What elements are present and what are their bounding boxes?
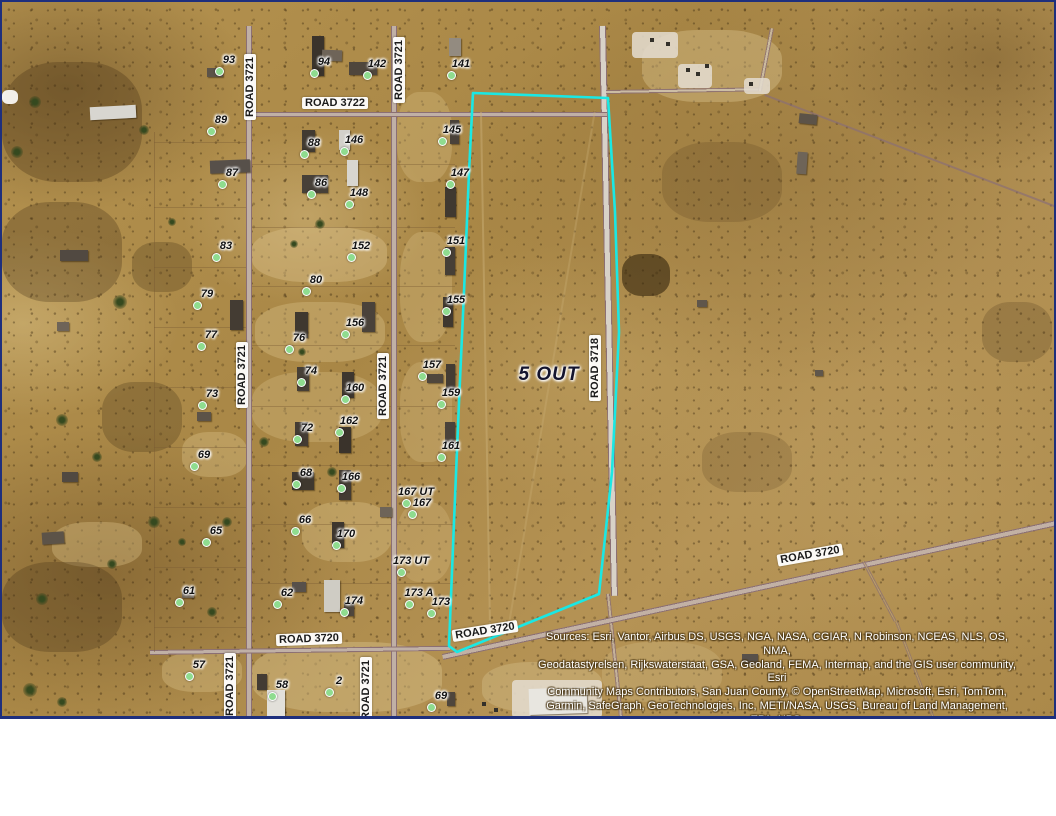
parcel-number-label: 76 xyxy=(293,332,305,344)
address-point xyxy=(302,287,311,296)
parcel-number-label: 57 xyxy=(193,659,205,671)
road-name-label: ROAD 3720 xyxy=(276,632,342,646)
building xyxy=(60,250,88,261)
road-strip xyxy=(252,164,391,165)
tank-structure xyxy=(749,82,753,86)
parcel-tag-label: 5 OUT xyxy=(519,364,580,386)
cleared-pad xyxy=(744,78,770,94)
road-strip xyxy=(252,465,391,466)
building xyxy=(796,152,808,175)
parcel-number-label: 93 xyxy=(223,54,235,66)
address-point xyxy=(442,307,451,316)
address-point xyxy=(185,672,194,681)
cleared-pad xyxy=(632,32,678,58)
address-point xyxy=(337,484,346,493)
road-strip xyxy=(397,164,455,165)
parcel-number-label: 94 xyxy=(318,56,330,68)
parcel-number-label: 160 xyxy=(346,382,364,394)
address-point xyxy=(307,190,316,199)
parcel-number-label: 58 xyxy=(276,679,288,691)
building xyxy=(380,507,392,517)
road-strip xyxy=(154,507,246,508)
address-point xyxy=(207,127,216,136)
parcel-number-label: 159 xyxy=(442,387,460,399)
road-strip xyxy=(154,142,246,143)
tank-structure xyxy=(705,64,709,68)
parcel-number-label: 161 xyxy=(442,440,460,452)
parcel-number-label: 66 xyxy=(299,514,311,526)
address-point xyxy=(438,137,447,146)
address-point xyxy=(293,435,302,444)
building xyxy=(230,300,243,330)
tree xyxy=(298,348,306,356)
address-point xyxy=(408,510,417,519)
attribution-line: Sources: Esri, Vantor, Airbus DS, USGS, … xyxy=(537,631,1017,659)
address-point xyxy=(202,538,211,547)
road-strip xyxy=(397,227,455,228)
address-point xyxy=(285,345,294,354)
parcel-number-label: 173 UT xyxy=(393,555,429,567)
parcel-number-label: 79 xyxy=(201,288,213,300)
parcel-number-label: 155 xyxy=(447,294,465,306)
road-name-label: ROAD 3722 xyxy=(302,97,368,109)
tree xyxy=(178,538,186,546)
terrain-patch xyxy=(662,142,782,222)
parcel-number-label: 156 xyxy=(346,317,364,329)
terrain-patch xyxy=(622,254,670,296)
parcel-number-label: 2 xyxy=(336,675,342,687)
tree xyxy=(36,593,48,605)
tree xyxy=(327,467,337,477)
parcel-number-label: 174 xyxy=(345,595,363,607)
road-name-label: ROAD 3721 xyxy=(236,342,248,408)
road-strip xyxy=(397,524,455,525)
parcel-number-label: 147 xyxy=(451,167,469,179)
parcel-number-label: 77 xyxy=(205,329,217,341)
address-point xyxy=(218,180,227,189)
road-strip xyxy=(252,524,391,525)
parcel-number-label: 69 xyxy=(435,690,447,702)
attribution-line: Community Maps Contributors, San Juan Co… xyxy=(537,686,1017,700)
address-point xyxy=(190,462,199,471)
parcel-number-label: 173 A xyxy=(405,587,434,599)
terrain-patch xyxy=(2,62,142,182)
parcel-number-label: 167 xyxy=(413,497,431,509)
terrain-patch xyxy=(982,302,1052,362)
tree xyxy=(148,516,160,528)
address-point xyxy=(193,301,202,310)
parcel-number-label: 151 xyxy=(447,235,465,247)
address-point xyxy=(332,541,341,550)
attribution-line: Geodatastyrelsen, Rijkswaterstaat, GSA, … xyxy=(537,659,1017,687)
parcel-number-label: 162 xyxy=(340,415,358,427)
address-point xyxy=(437,453,446,462)
building xyxy=(57,322,69,331)
road-strip xyxy=(154,207,246,208)
address-point xyxy=(300,150,309,159)
building xyxy=(197,412,211,421)
parcel-number-label: 69 xyxy=(198,449,210,461)
address-point xyxy=(310,69,319,78)
building xyxy=(799,113,818,125)
map-canvas: ROAD 3721ROAD 3721ROAD 3721ROAD 3721ROAD… xyxy=(0,0,1056,719)
parcel-number-label: 142 xyxy=(368,58,386,70)
address-point xyxy=(442,248,451,257)
address-point xyxy=(273,600,282,609)
address-point xyxy=(325,688,334,697)
road-name-label: ROAD 3721 xyxy=(360,657,372,719)
address-point xyxy=(447,71,456,80)
tank-structure xyxy=(696,72,700,76)
road-name-label: ROAD 3721 xyxy=(393,37,405,103)
address-point xyxy=(402,499,411,508)
attribution-line: Garmin, SafeGraph, GeoTechnologies, Inc,… xyxy=(537,700,1017,719)
tree xyxy=(290,240,298,248)
address-point xyxy=(268,692,277,701)
terrain-texture xyxy=(2,2,1054,716)
tree xyxy=(222,517,232,527)
tank-structure xyxy=(494,708,498,712)
terrain-patch xyxy=(102,382,182,452)
address-point xyxy=(198,401,207,410)
footer: The San Juan County Assessor's Office as… xyxy=(0,719,1056,816)
tree xyxy=(139,125,149,135)
address-point xyxy=(345,200,354,209)
road-strip xyxy=(397,583,455,584)
address-point xyxy=(363,71,372,80)
terrain-patch xyxy=(52,522,142,567)
parcel-number-label: 146 xyxy=(345,134,363,146)
parcel-number-label: 173 xyxy=(432,596,450,608)
tree xyxy=(57,697,67,707)
road-strip xyxy=(397,345,455,346)
map-attribution: Sources: Esri, Vantor, Airbus DS, USGS, … xyxy=(537,631,1017,719)
road-name-label: ROAD 3721 xyxy=(224,653,236,719)
road-strip xyxy=(249,112,607,117)
building xyxy=(427,374,443,383)
address-point xyxy=(341,330,350,339)
road-name-label: ROAD 3721 xyxy=(244,54,256,120)
parcel-number-label: 74 xyxy=(305,365,317,377)
building xyxy=(347,160,358,186)
road-strip xyxy=(252,406,391,407)
parcel-number-label: 62 xyxy=(281,587,293,599)
parcel-number-label: 145 xyxy=(443,124,461,136)
terrain-patch xyxy=(2,90,18,104)
road-strip xyxy=(252,583,391,584)
parcel-number-label: 65 xyxy=(210,525,222,537)
parcel-number-label: 170 xyxy=(337,528,355,540)
road-strip xyxy=(154,387,246,388)
parcel-number-label: 73 xyxy=(206,388,218,400)
road-strip xyxy=(154,567,246,568)
parcel-number-label: 68 xyxy=(300,467,312,479)
road-name-label: ROAD 3721 xyxy=(377,353,389,419)
address-point xyxy=(340,147,349,156)
assessor-map-page: ROAD 3721ROAD 3721ROAD 3721ROAD 3721ROAD… xyxy=(0,0,1056,816)
terrain-patch xyxy=(702,432,792,492)
parcel-number-label: 61 xyxy=(183,585,195,597)
address-point xyxy=(427,609,436,618)
parcel-number-label: 87 xyxy=(226,167,238,179)
tree xyxy=(11,146,23,158)
tree xyxy=(259,437,269,447)
tree xyxy=(56,414,68,426)
tank-structure xyxy=(482,702,486,706)
address-point xyxy=(437,400,446,409)
road-strip xyxy=(154,447,246,448)
parcel-number-label: 80 xyxy=(310,274,322,286)
address-point xyxy=(427,703,436,712)
address-point xyxy=(297,378,306,387)
building xyxy=(697,300,707,307)
tree xyxy=(92,452,102,462)
parcel-number-label: 83 xyxy=(220,240,232,252)
road-name-label: ROAD 3718 xyxy=(589,335,601,401)
address-point xyxy=(418,372,427,381)
terrain-patch xyxy=(2,562,122,652)
road-strip xyxy=(252,345,391,346)
address-point xyxy=(291,527,300,536)
parcel-number-label: 72 xyxy=(301,422,313,434)
parcel-number-label: 88 xyxy=(308,137,320,149)
parcel-number-label: 166 xyxy=(342,471,360,483)
tree xyxy=(168,218,176,226)
parcel-number-label: 141 xyxy=(452,58,470,70)
road-strip xyxy=(391,26,397,719)
address-point xyxy=(341,395,350,404)
address-point xyxy=(335,428,344,437)
building xyxy=(90,105,137,120)
building xyxy=(815,370,823,376)
address-point xyxy=(340,608,349,617)
address-point xyxy=(212,253,221,262)
tree xyxy=(23,683,37,697)
address-point xyxy=(175,598,184,607)
address-point xyxy=(215,67,224,76)
address-point xyxy=(446,180,455,189)
road-strip xyxy=(154,267,246,268)
address-point xyxy=(347,253,356,262)
address-point xyxy=(397,568,406,577)
parcel-number-label: 157 xyxy=(423,359,441,371)
building xyxy=(292,582,306,592)
tree xyxy=(107,559,117,569)
building xyxy=(257,674,267,690)
road-strip xyxy=(252,286,391,287)
road-strip xyxy=(397,465,455,466)
parcel-number-label: 152 xyxy=(352,240,370,252)
address-point xyxy=(292,480,301,489)
tank-structure xyxy=(686,68,690,72)
building xyxy=(62,472,78,482)
building xyxy=(445,187,456,217)
building xyxy=(324,580,340,612)
address-point xyxy=(197,342,206,351)
building xyxy=(42,531,65,545)
road-strip xyxy=(397,286,455,287)
road-strip xyxy=(154,627,246,628)
tree xyxy=(113,295,127,309)
parcel-number-label: 89 xyxy=(215,114,227,126)
road-strip xyxy=(154,132,155,652)
building xyxy=(449,38,461,56)
address-point xyxy=(405,600,414,609)
road-strip xyxy=(397,406,455,407)
parcel-number-label: 86 xyxy=(315,177,327,189)
parcel-number-label: 148 xyxy=(350,187,368,199)
tree xyxy=(29,96,41,108)
building xyxy=(447,692,455,706)
tank-structure xyxy=(666,42,670,46)
tree xyxy=(207,607,217,617)
tree xyxy=(315,219,325,229)
tank-structure xyxy=(650,38,654,42)
